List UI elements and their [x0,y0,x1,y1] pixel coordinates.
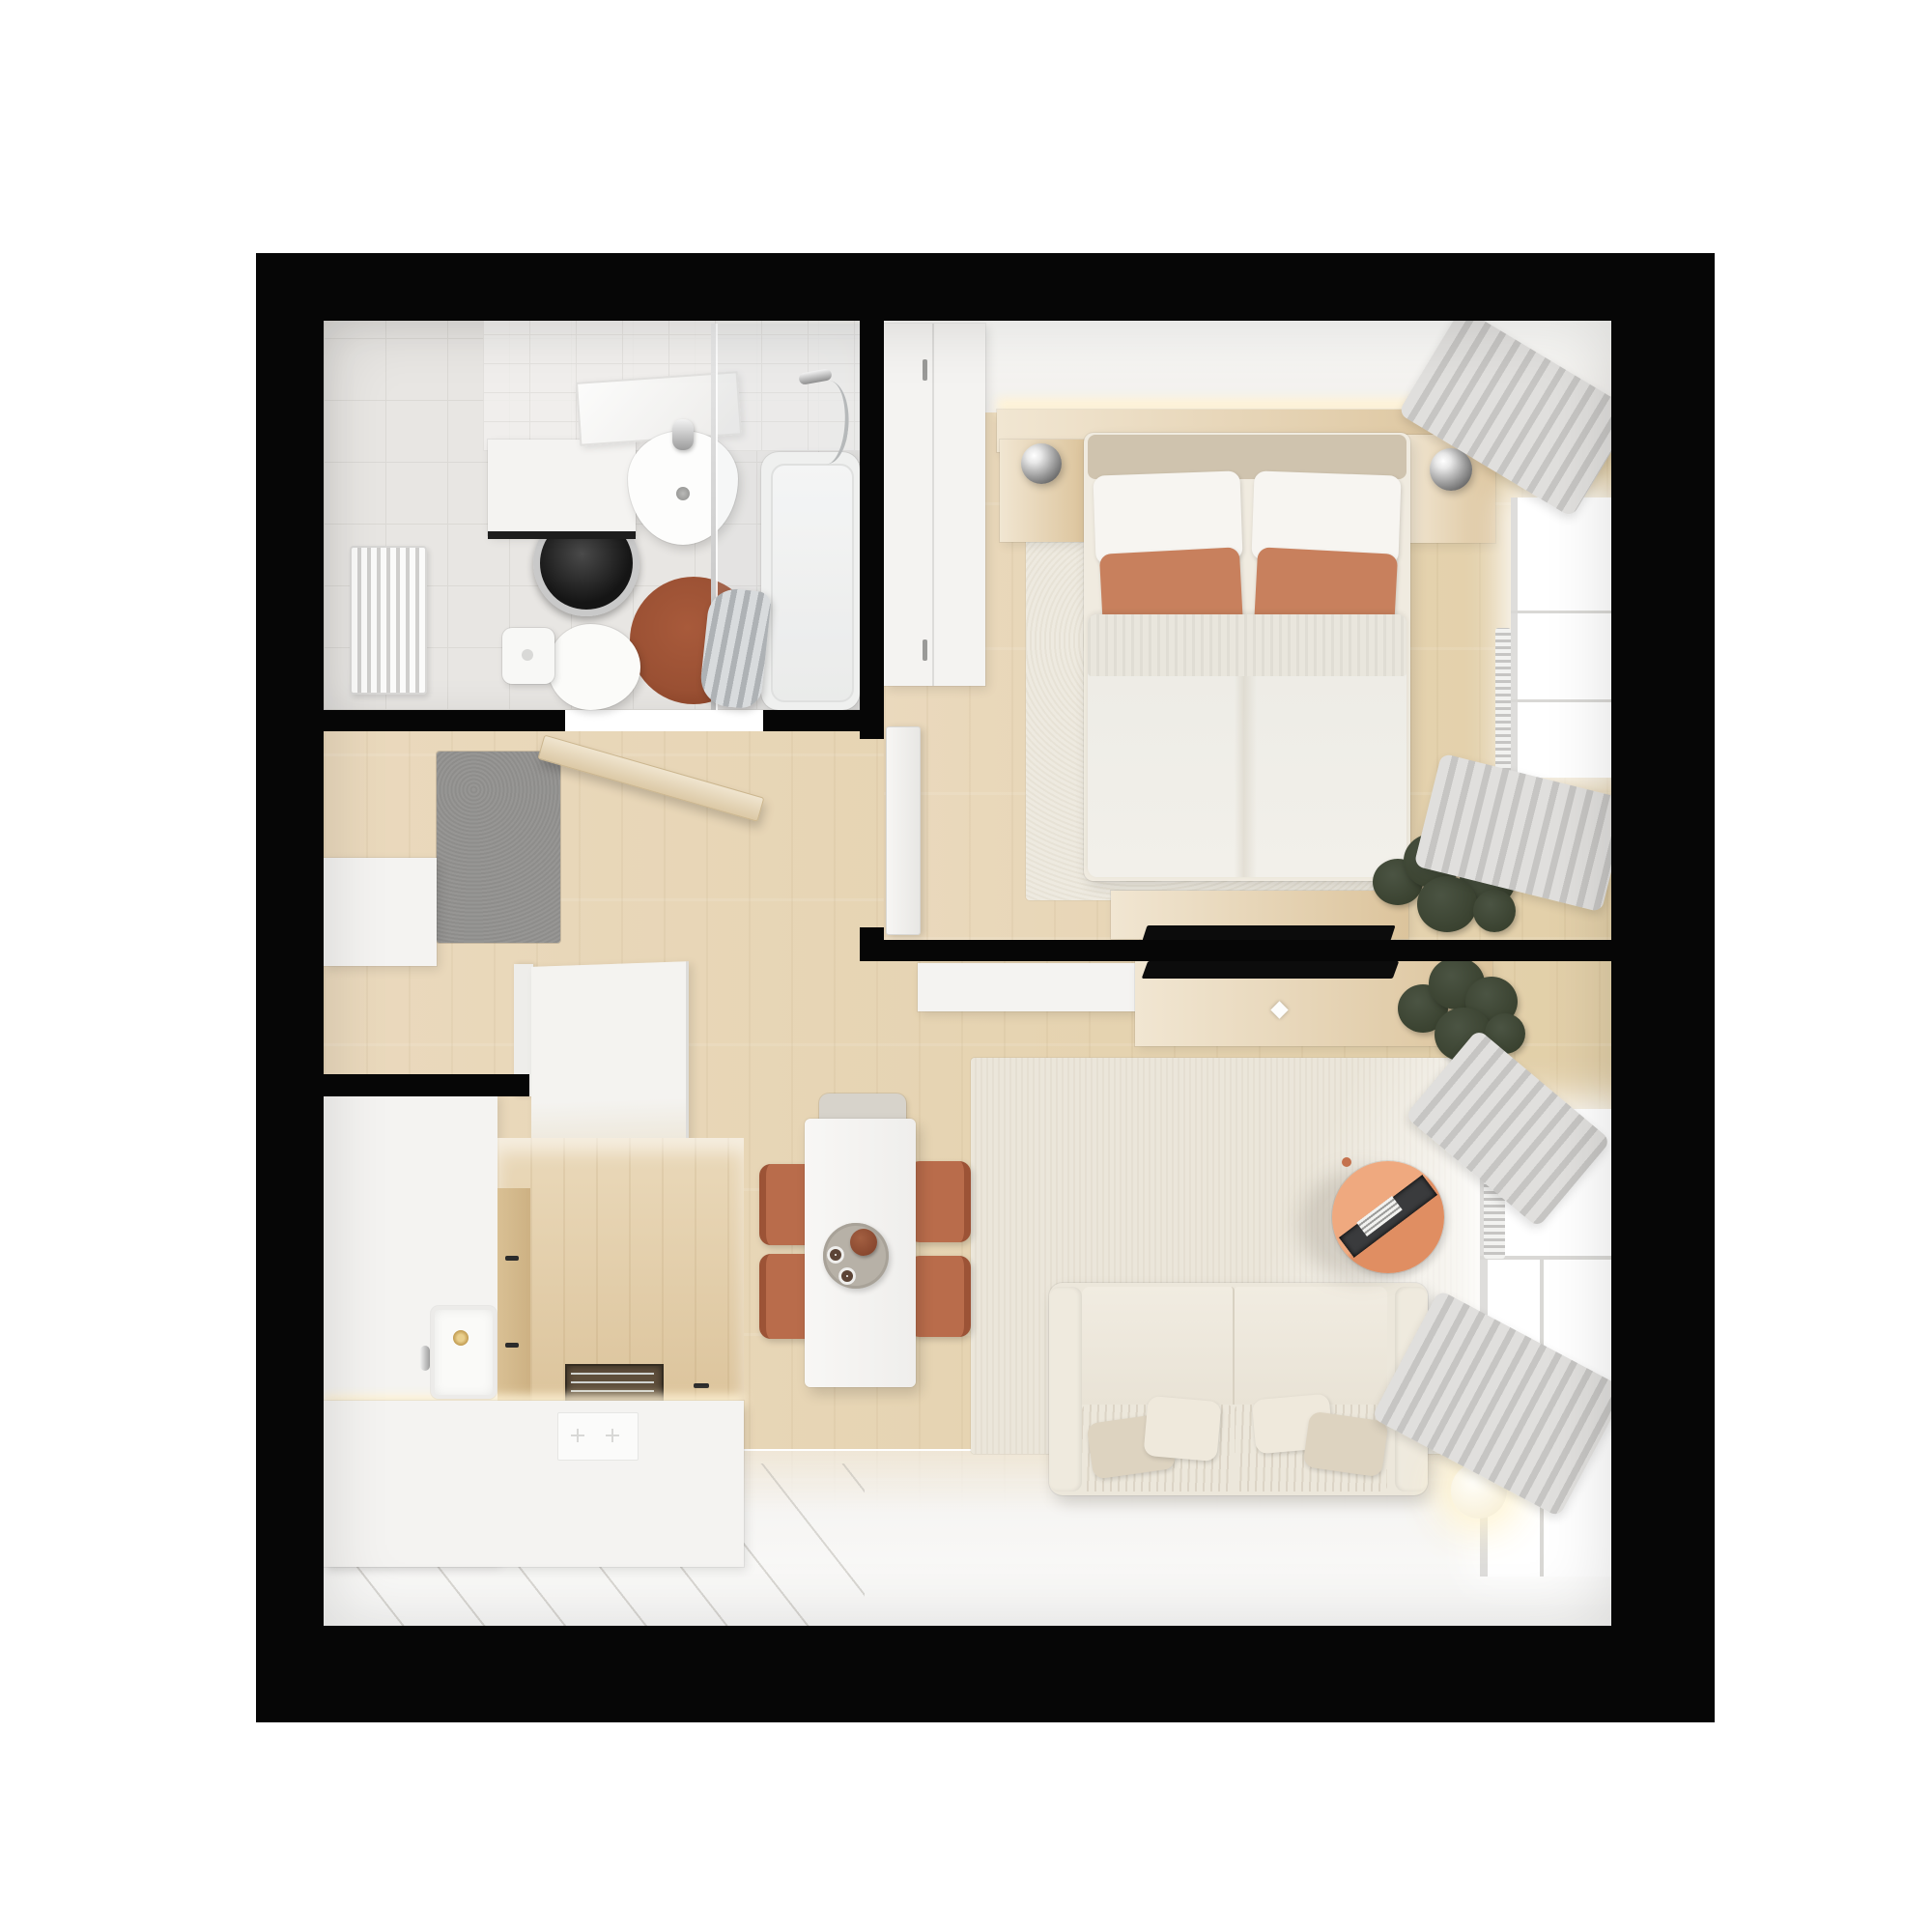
washer-counter [488,440,636,535]
bathroom-radiator [350,546,427,695]
open-bathroom-door [537,735,764,822]
runner-rug [437,752,560,943]
cabinet-handle [505,1256,519,1261]
bedroom-window-mullion [1511,611,1611,613]
sofa [1049,1283,1428,1495]
cabinet-handle [505,1343,519,1348]
sphere-lamp-right [1430,448,1472,491]
cabinet-front-strip [497,1188,530,1406]
induction-hob [557,1412,639,1461]
sink-gold-drain [453,1330,469,1346]
towel-drape [698,586,772,710]
wall-bedroom-left-upper [860,321,884,739]
sofa-backrest-left [1082,1287,1235,1405]
bedroom-window [1511,497,1618,778]
kitchen-counter-bottom [324,1401,744,1567]
double-bed [1084,433,1410,881]
hob-cross-mark [606,1429,619,1442]
basin-faucet-icon [672,419,694,450]
round-side-table [1309,1150,1454,1294]
floor-plan-canvas [0,0,1932,1932]
wardrobe-handle [923,639,927,661]
sofa-backrest-right [1235,1287,1387,1405]
kitchen-sink [431,1306,497,1399]
room-bedroom [884,321,1611,940]
room-bathroom [324,321,860,710]
wall-right [1611,253,1715,1722]
cup-icon [827,1246,844,1264]
wardrobe [884,324,985,686]
basin-drain-icon [676,487,690,500]
cup-icon [838,1267,856,1285]
sofa-armrest-left [1049,1287,1082,1492]
toilet-flush-button [522,649,533,661]
table-knob [1342,1157,1351,1167]
sphere-lamp-left [1021,443,1062,484]
wall-hall-kitchen-stub [256,1074,529,1096]
living-tv [1142,961,1400,979]
bedroom-tv [1142,925,1395,941]
bedroom-radiator-grille [1495,628,1511,775]
sofa-pillow [1302,1411,1388,1478]
dining-area [753,1092,1005,1391]
room-hallway [324,731,860,1096]
hob-cross-mark [571,1429,584,1442]
duvet-fold [1088,614,1406,676]
sideboard-white [918,963,1135,1011]
teapot-icon [850,1229,877,1256]
wall-top [256,253,1715,321]
hall-console [324,858,437,966]
wall-left [256,253,324,1722]
wall-bottom [256,1626,1715,1722]
bedroom-window-mullion [1511,699,1611,702]
cabinet-handle [694,1383,709,1388]
washer-counter-gap [488,531,636,539]
bedroom-open-door [886,726,921,935]
sofa-pillow [1143,1396,1221,1462]
wall-bathroom-hall-left [324,710,565,731]
chair-terracotta [908,1161,971,1242]
chair-terracotta [908,1256,971,1337]
sink-faucet-icon [420,1346,430,1371]
headboard-cushion [1088,435,1406,479]
wall-bedroom-living [860,940,1611,961]
wardrobe-handle [923,359,927,381]
wardrobe-door-seam [932,324,934,686]
